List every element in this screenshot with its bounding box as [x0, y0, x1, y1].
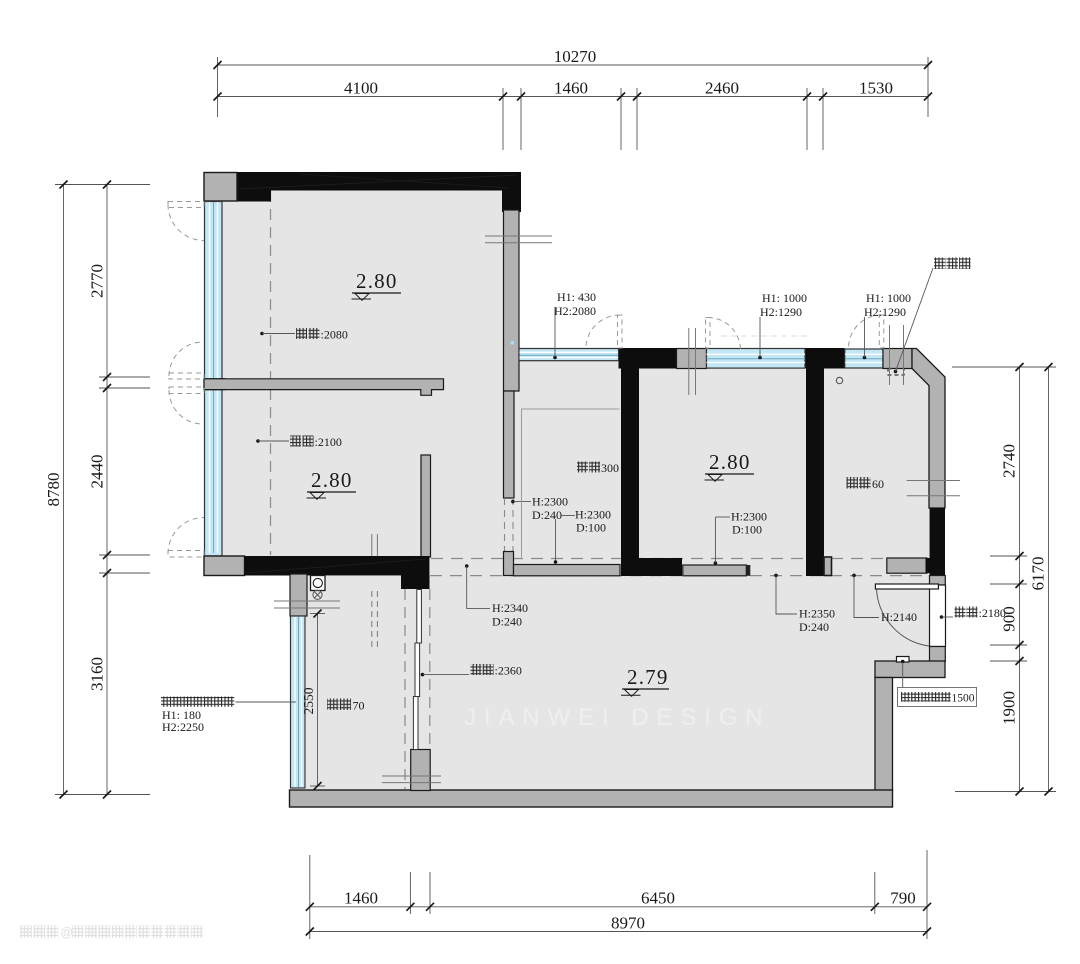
svg-text:2.80: 2.80 — [356, 269, 398, 293]
svg-text:D:240: D:240 — [492, 615, 522, 629]
svg-text:8780: 8780 — [44, 473, 63, 507]
svg-text::2360: :2360 — [495, 664, 522, 678]
svg-text:1500: 1500 — [952, 693, 975, 705]
svg-text::2100: :2100 — [315, 435, 342, 449]
svg-text:H1: 430: H1: 430 — [557, 290, 596, 304]
svg-text:H1: 1000: H1: 1000 — [866, 291, 911, 305]
svg-text:2.79: 2.79 — [627, 665, 669, 689]
svg-text:790: 790 — [890, 889, 916, 908]
svg-text:2770: 2770 — [88, 264, 107, 298]
svg-text:2440: 2440 — [88, 455, 107, 489]
svg-text:2.80: 2.80 — [311, 468, 353, 492]
svg-text:1460: 1460 — [554, 79, 588, 98]
svg-text:4100: 4100 — [344, 79, 378, 98]
svg-text:6450: 6450 — [641, 889, 675, 908]
svg-text:D:100: D:100 — [732, 523, 762, 537]
svg-text:70: 70 — [353, 699, 365, 713]
svg-text:2550: 2550 — [301, 687, 316, 714]
svg-text:JIANWEI DESIGN: JIANWEI DESIGN — [464, 704, 771, 731]
svg-text:H:2300: H:2300 — [532, 495, 568, 509]
svg-text:H:2300: H:2300 — [731, 510, 767, 524]
svg-text:D:100: D:100 — [576, 521, 606, 535]
svg-text::2080: :2080 — [321, 328, 348, 342]
svg-text:H2:2080: H2:2080 — [554, 304, 596, 318]
svg-text:1460: 1460 — [344, 889, 378, 908]
svg-text:3160: 3160 — [88, 657, 107, 691]
svg-text:10270: 10270 — [554, 47, 597, 66]
svg-text::2180: :2180 — [979, 606, 1006, 620]
svg-text:2.80: 2.80 — [709, 450, 751, 474]
svg-text:H:2300: H:2300 — [575, 508, 611, 522]
svg-text:300: 300 — [601, 461, 619, 475]
svg-text:1530: 1530 — [859, 79, 893, 98]
svg-text:8970: 8970 — [611, 914, 645, 933]
svg-text:60: 60 — [872, 477, 884, 491]
svg-text:@: @ — [60, 925, 73, 940]
svg-text:H2:1290: H2:1290 — [864, 305, 906, 319]
svg-text:1900: 1900 — [1000, 691, 1019, 725]
svg-text:H2:1290: H2:1290 — [760, 305, 802, 319]
svg-text:H2:2250: H2:2250 — [162, 720, 204, 734]
svg-text:2460: 2460 — [705, 79, 739, 98]
svg-text:D:240: D:240 — [532, 508, 562, 522]
svg-text:6170: 6170 — [1029, 557, 1048, 591]
svg-text:H:2140: H:2140 — [881, 610, 917, 624]
svg-text:H:2340: H:2340 — [492, 601, 528, 615]
svg-text:D:240: D:240 — [799, 620, 829, 634]
svg-text:2740: 2740 — [1000, 444, 1019, 478]
svg-text:H:2350: H:2350 — [799, 607, 835, 621]
svg-text:H1: 1000: H1: 1000 — [762, 291, 807, 305]
